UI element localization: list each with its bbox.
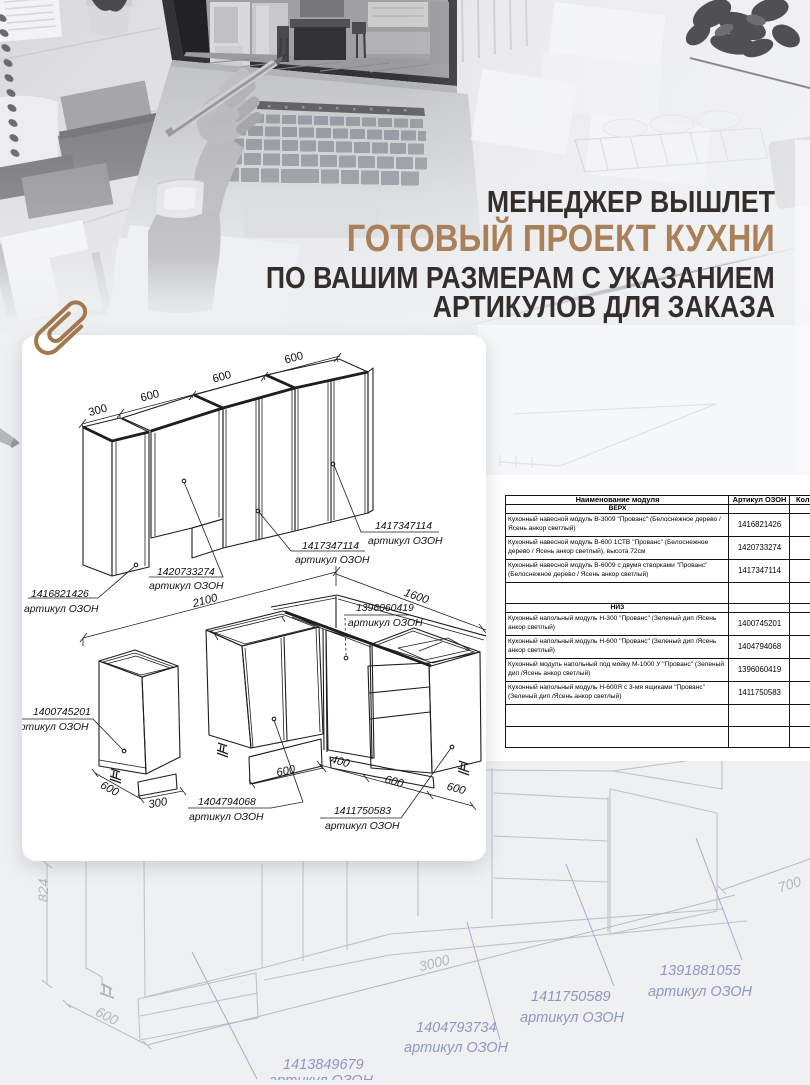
svg-text:700: 700 [776,873,803,896]
svg-text:1411750589: 1411750589 [531,989,611,1005]
svg-text:артикул ОЗОН: артикул ОЗОН [22,722,89,733]
svg-text:600: 600 [283,350,304,366]
svg-text:артикул ОЗОН: артикул ОЗОН [149,581,224,592]
svg-text:600: 600 [211,369,232,385]
svg-text:артикул ОЗОН: артикул ОЗОН [325,821,400,832]
svg-text:3000: 3000 [417,951,451,974]
svg-text:артикул ОЗОН: артикул ОЗОН [648,984,753,1000]
svg-text:артикул ОЗОН: артикул ОЗОН [269,1073,374,1080]
svg-text:артикул ОЗОН: артикул ОЗОН [24,604,99,615]
svg-text:артикул ОЗОН: артикул ОЗОН [368,536,443,547]
svg-text:1400745201: 1400745201 [33,707,91,718]
svg-text:600: 600 [93,1003,121,1028]
svg-text:1417347114: 1417347114 [302,541,359,552]
svg-text:600: 600 [445,781,467,798]
svg-text:600: 600 [383,774,405,791]
svg-text:1404793734: 1404793734 [416,1020,497,1036]
svg-text:1416821426: 1416821426 [31,589,89,600]
svg-text:824: 824 [35,878,51,902]
svg-text:600: 600 [139,388,160,404]
svg-text:1391881055: 1391881055 [660,963,742,979]
svg-text:1417347114: 1417347114 [375,521,432,532]
svg-text:артикул ОЗОН: артикул ОЗОН [295,555,370,566]
svg-text:300: 300 [87,403,108,419]
svg-text:1413849679: 1413849679 [283,1057,364,1073]
svg-text:артикул ОЗОН: артикул ОЗОН [404,1040,509,1056]
svg-text:1411750583: 1411750583 [334,806,391,817]
svg-text:артикул ОЗОН: артикул ОЗОН [189,812,264,823]
svg-text:артикул ОЗОН: артикул ОЗОН [520,1010,625,1026]
svg-text:1396060419: 1396060419 [356,603,414,614]
svg-text:300: 300 [148,796,169,811]
svg-text:1404794068: 1404794068 [198,797,256,808]
svg-text:1420733274: 1420733274 [157,567,215,578]
svg-text:артикул ОЗОН: артикул ОЗОН [348,618,423,629]
svg-text:2100: 2100 [190,592,219,611]
